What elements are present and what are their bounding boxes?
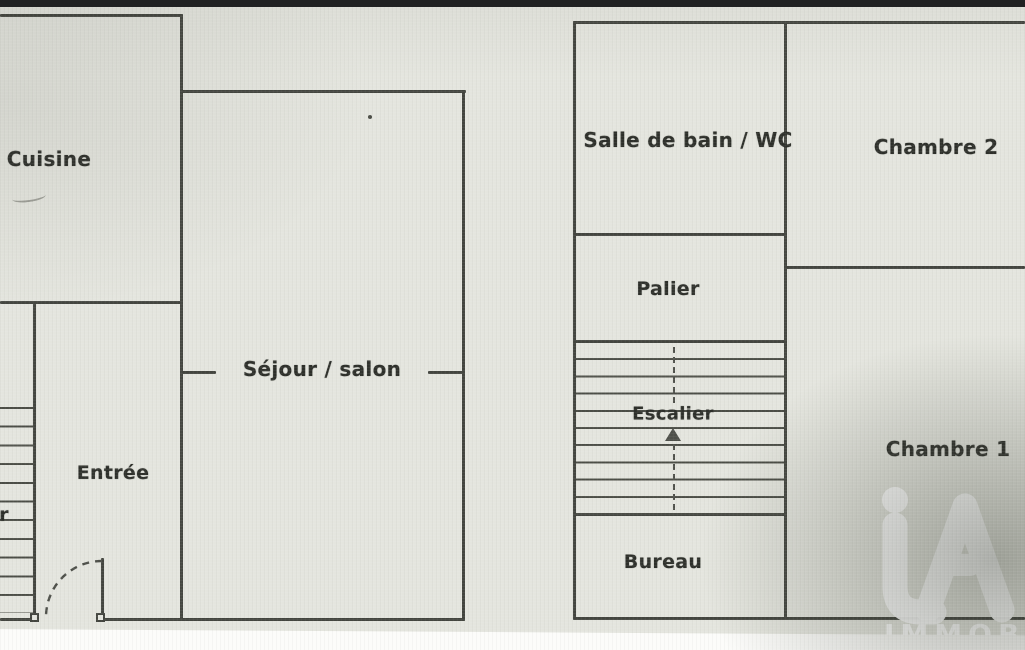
wall-upper-top — [573, 21, 1025, 24]
stairs-arrow-dash-lower — [673, 444, 675, 510]
iad-logo-a-crossbar — [935, 554, 981, 576]
wall-upper-left — [573, 21, 576, 620]
wall-chambre-divider — [784, 266, 1025, 269]
room-label-entree: Entrée — [77, 462, 150, 484]
stair-label-fragment: r — [0, 504, 9, 526]
room-label-chambre-1: Chambre 1 — [886, 437, 1011, 461]
room-label-chambre-2: Chambre 2 — [874, 135, 999, 159]
room-label-sejour-salon: Séjour / salon — [243, 357, 401, 381]
stairs-up-arrow-icon — [665, 428, 681, 441]
wall-sdb-bottom — [573, 233, 787, 236]
iad-logo-i-dot — [882, 487, 908, 513]
stairs-arrow-dash-upper — [673, 347, 675, 403]
room-label-palier: Palier — [636, 278, 699, 300]
room-label-cuisine: Cuisine — [7, 147, 91, 171]
photo-top-edge-bar — [0, 0, 1025, 7]
room-label-salle-de-bain-wc: Salle de bain / WC — [583, 128, 792, 152]
iad-logo — [855, 470, 1025, 640]
room-label-bureau: Bureau — [624, 551, 702, 573]
plan-speck — [368, 115, 372, 119]
wall-upper-middle — [784, 21, 787, 620]
floorplan-photo: Cuisine Séjour / salon Entrée r Salle de… — [0, 0, 1025, 650]
room-label-escalier: Escalier — [632, 404, 714, 425]
